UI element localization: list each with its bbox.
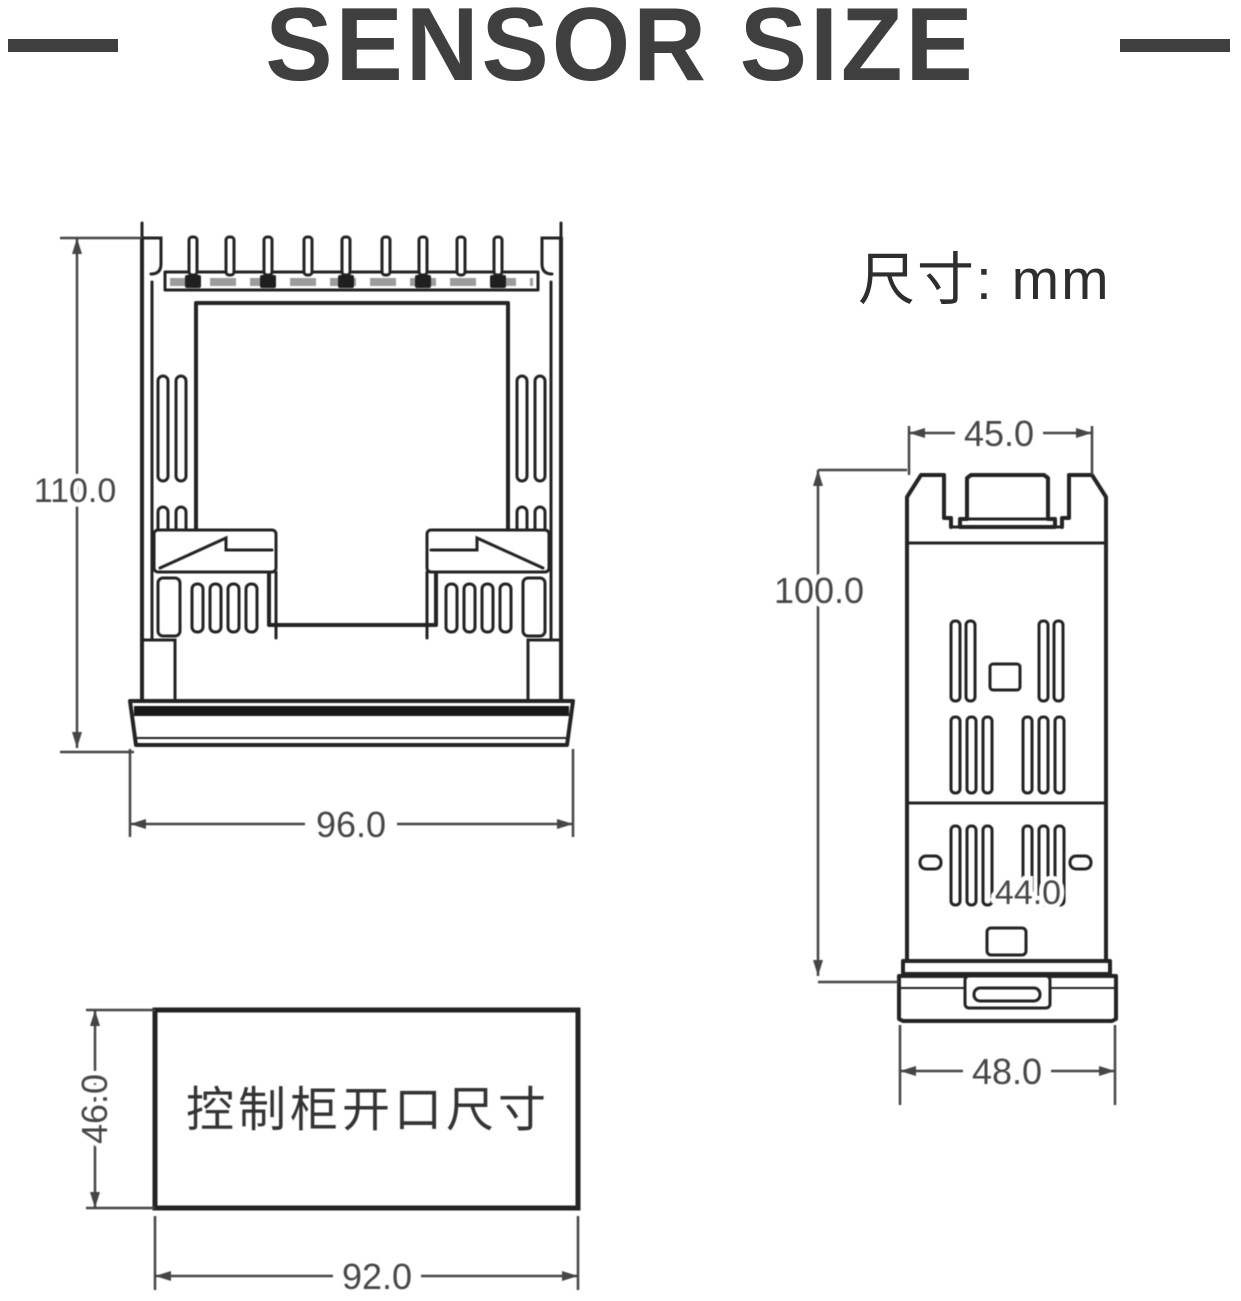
- rear-height-dim-label: 110.0: [34, 472, 117, 510]
- page-title: SENSOR SIZE: [19, 0, 1223, 105]
- unit-note: 尺寸: mm: [858, 234, 1111, 316]
- side-top-width-label: 45.0: [964, 420, 1034, 454]
- side-height-dimension: 100.0: [775, 470, 907, 982]
- side-bottom-width-dimension: 48.0: [900, 1025, 1115, 1105]
- front-bezel: [130, 701, 573, 745]
- rear-central-opening: [196, 303, 508, 625]
- cutout-label: 控制柜开口尺寸: [186, 1084, 550, 1137]
- bezel-dark-band: [134, 706, 569, 716]
- rear-width-dim-label: 96.0: [316, 804, 386, 845]
- side-height-dim-label: 100.0: [775, 570, 864, 611]
- rear-body-outline: [142, 223, 561, 701]
- rear-view-drawing: 110.0 96.0: [30, 192, 640, 892]
- side-bezel: [899, 961, 1116, 1021]
- side-bottom-width-label: 48.0: [972, 1051, 1042, 1092]
- rear-width-dimension: 96.0: [130, 749, 573, 845]
- panel-cutout-drawing: 控制柜开口尺寸 46.0 92.0: [50, 990, 650, 1301]
- terminal-pins: [165, 237, 538, 290]
- rear-latch-blocks: [142, 530, 561, 701]
- cutout-width-dim-label: 92.0: [342, 1256, 412, 1297]
- side-view-drawing: 44.0 45.0 100.0: [775, 420, 1215, 1120]
- side-mid-width-dim-label: 44.0: [995, 874, 1061, 912]
- cutout-width-dimension: 92.0: [155, 1216, 578, 1297]
- side-top-width-dimension: 45.0: [909, 420, 1092, 475]
- sensor-size-diagram: SENSOR SIZE 尺寸: mm: [0, 0, 1241, 1301]
- rear-height-dimension: 110.0: [34, 238, 142, 752]
- cutout-height-dim-label: 46.0: [74, 1074, 115, 1144]
- cutout-height-dimension: 46.0: [74, 1010, 155, 1208]
- title-dash-right: [1120, 39, 1230, 52]
